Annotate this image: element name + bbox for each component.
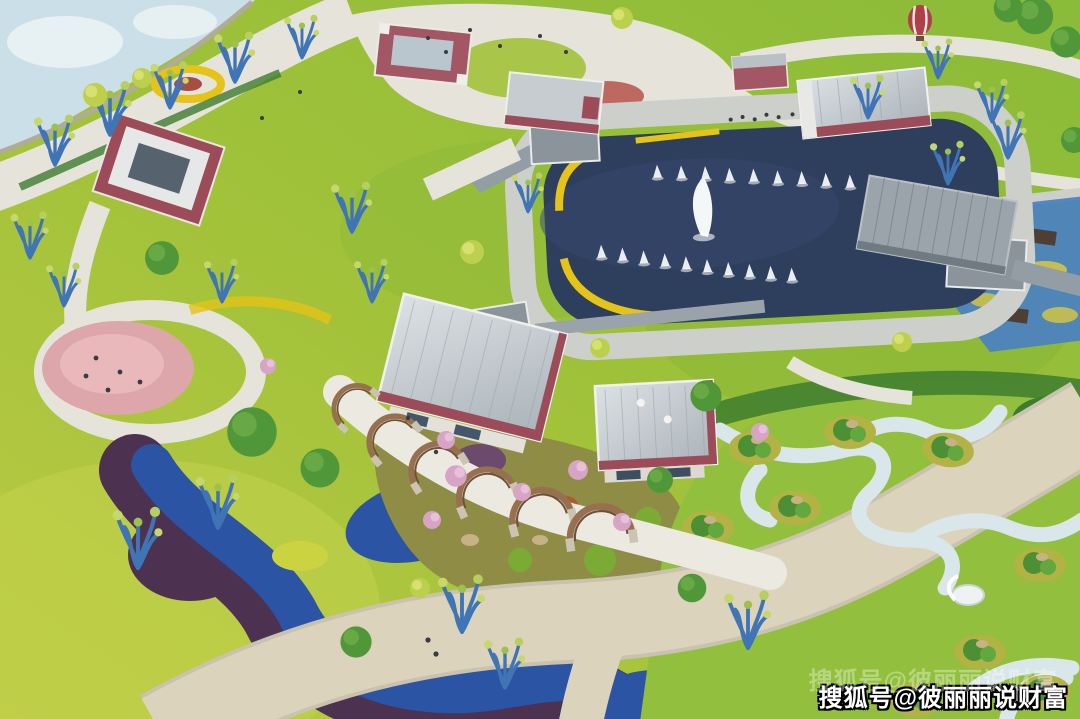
building-top-center (375, 23, 472, 84)
park-scene (0, 0, 1080, 719)
pink-plaza-center (60, 334, 164, 394)
branch-path (580, 618, 612, 719)
building-top-mid (505, 72, 604, 134)
building-top-right-small (732, 53, 788, 91)
aerial-park-photo: 搜狐号@彼丽丽说财富 搜狐号@彼丽丽说财富 (0, 0, 1080, 719)
